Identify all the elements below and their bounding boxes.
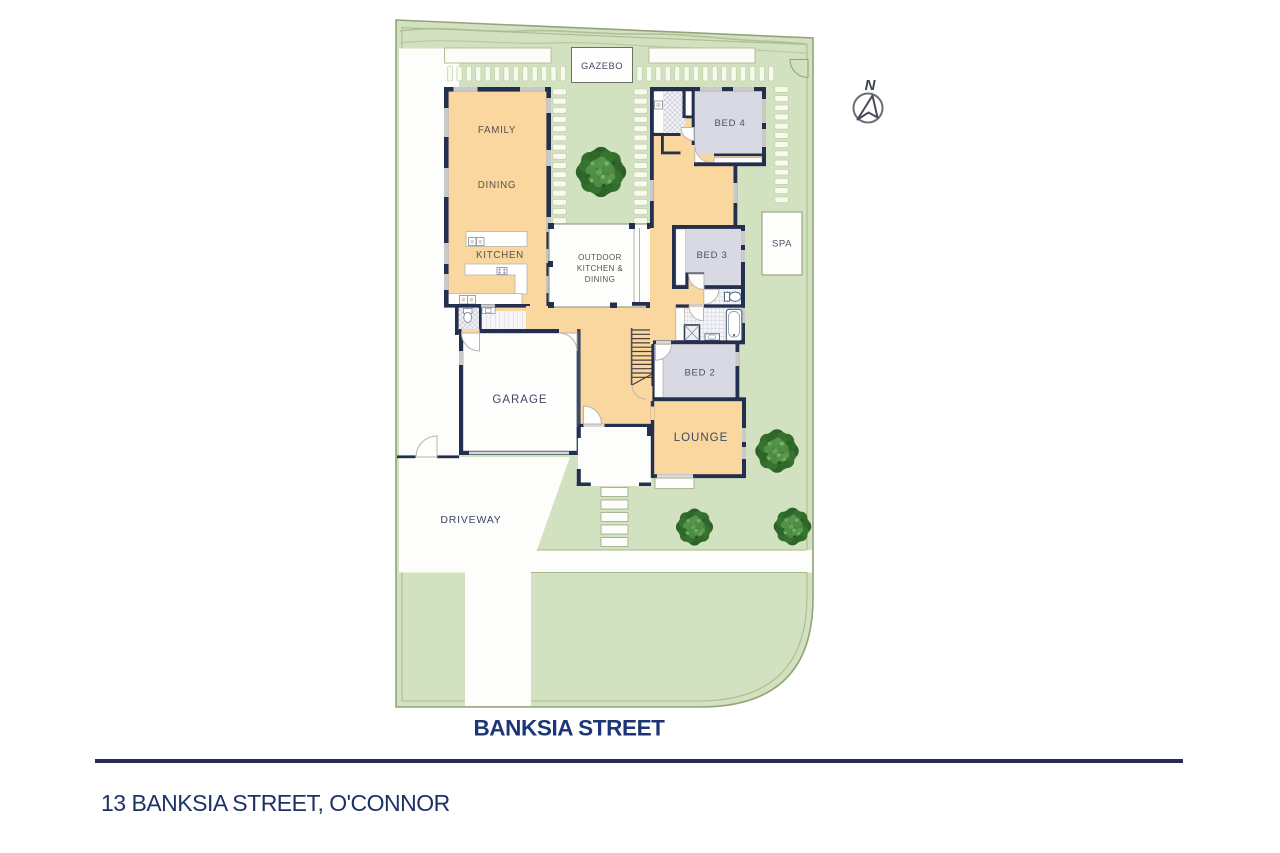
svg-text:BED 3: BED 3 (697, 250, 728, 261)
svg-text:SPA: SPA (772, 239, 792, 250)
svg-text:LOUNGE: LOUNGE (674, 432, 729, 444)
svg-text:13 BANKSIA STREET, O'CONNOR: 13 BANKSIA STREET, O'CONNOR (101, 790, 450, 816)
svg-text:DINING: DINING (585, 275, 615, 284)
svg-text:BED 4: BED 4 (715, 118, 746, 129)
svg-text:DRIVEWAY: DRIVEWAY (440, 514, 501, 526)
svg-text:GARAGE: GARAGE (492, 394, 547, 406)
svg-text:KITCHEN: KITCHEN (476, 250, 524, 261)
svg-text:KITCHEN &: KITCHEN & (577, 264, 624, 273)
svg-text:GAZEBO: GAZEBO (581, 60, 623, 71)
svg-text:BED 2: BED 2 (685, 368, 716, 379)
svg-text:FAMILY: FAMILY (478, 125, 516, 136)
svg-text:BANKSIA STREET: BANKSIA STREET (473, 716, 665, 741)
svg-text:N: N (865, 77, 877, 94)
svg-text:DINING: DINING (478, 180, 517, 191)
svg-text:OUTDOOR: OUTDOOR (578, 253, 622, 262)
